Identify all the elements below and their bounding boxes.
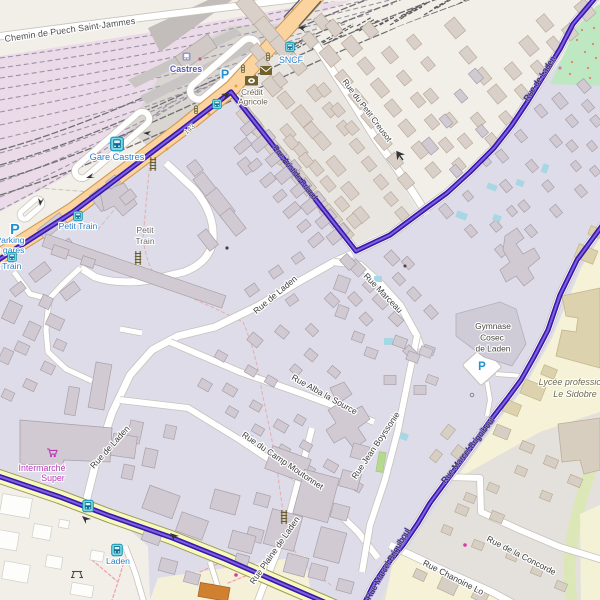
svg-text:Gymnase: Gymnase	[475, 321, 511, 331]
svg-text:Intermarché: Intermarché	[19, 463, 66, 473]
svg-text:Le Sidobre: Le Sidobre	[553, 389, 597, 399]
svg-text:Petit Train: Petit Train	[59, 221, 98, 231]
svg-text:Gare Castres: Gare Castres	[90, 152, 145, 162]
svg-text:P: P	[221, 68, 229, 82]
svg-text:Petit Train: Petit Train	[0, 261, 22, 271]
svg-text:Train: Train	[135, 236, 154, 246]
svg-text:SNCF: SNCF	[279, 55, 304, 65]
svg-text:Cosec: Cosec	[480, 333, 504, 343]
svg-text:Parking: Parking	[0, 235, 25, 245]
svg-text:Laden: Laden	[106, 556, 130, 566]
svg-text:Super: Super	[41, 473, 65, 483]
svg-text:Agricole: Agricole	[238, 98, 268, 107]
svg-text:Crédit: Crédit	[241, 88, 264, 97]
svg-text:Castres: Castres	[170, 64, 202, 74]
svg-text:Lycée professio: Lycée professio	[539, 377, 600, 387]
svg-text:de Laden: de Laden	[476, 344, 511, 354]
svg-text:P: P	[478, 361, 486, 373]
svg-text:Petit: Petit	[136, 225, 154, 235]
